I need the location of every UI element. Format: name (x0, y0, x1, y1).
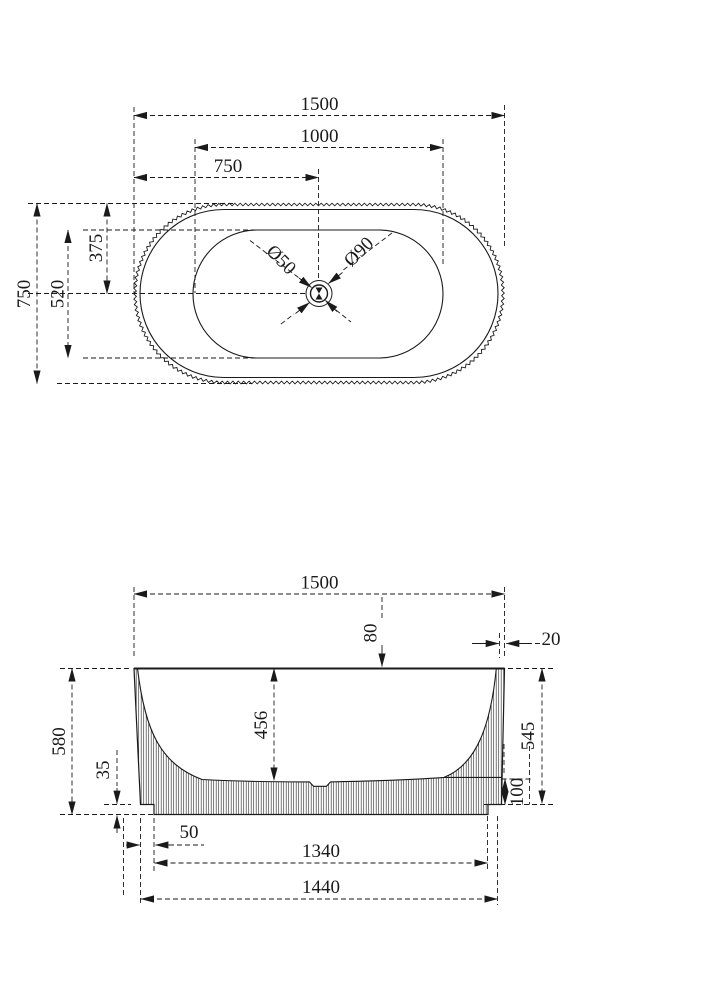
dim-label-flange: Ø90 (340, 233, 378, 271)
dim-overall-height: 580 (49, 669, 72, 815)
dim-label-bottom-width: 1440 (302, 877, 340, 898)
dim-top-center-x: 750 (134, 156, 319, 178)
leader-arrow (326, 301, 338, 312)
leader-arrow (296, 303, 310, 314)
dim-label-rim-ledge: 80 (361, 624, 382, 643)
dim-label-base-height: 100 (507, 778, 528, 807)
dim-bottom-width: 1440 (141, 877, 498, 899)
dim-label-side-height: 545 (518, 722, 539, 751)
dim-label-top-inner-width: 1000 (301, 126, 339, 147)
dim-label-drain: Ø50 (262, 241, 300, 279)
dim-base-offset: 50 (126, 822, 204, 845)
dim-top-overall-width: 1500 (134, 94, 505, 116)
dim-label-top-center-x: 750 (214, 156, 243, 177)
dim-wall-thickness: 20 (472, 629, 561, 650)
dim-label-base-offset: 50 (180, 822, 199, 843)
leader-line (336, 310, 351, 322)
dim-label-wall-thickness: 20 (542, 629, 561, 650)
dim-top-overall-depth: 750 (14, 204, 37, 384)
dim-base-height: 100 (505, 778, 528, 807)
dim-base-step: 35 (93, 750, 117, 833)
dim-label-base-width: 1340 (302, 841, 340, 862)
dim-side-overall-width: 1500 (134, 573, 505, 595)
tub-basin-interior (138, 669, 497, 787)
dim-label-top-overall-depth: 750 (14, 280, 35, 309)
dim-rim-ledge: 80 (361, 597, 383, 667)
leader-line (281, 314, 294, 324)
dim-top-center-y: 375 (86, 204, 107, 294)
dim-label-top-inner-depth: 520 (48, 280, 69, 309)
dim-label-base-step: 35 (93, 761, 114, 780)
top-view: Ø50 Ø90 1500 1000 750 750 520 375 (14, 94, 505, 384)
drawing-sheet: Ø50 Ø90 1500 1000 750 750 520 375 (0, 0, 724, 1000)
dim-base-width: 1340 (155, 841, 488, 863)
side-view: 1500 80 20 580 456 545 100 (49, 573, 561, 906)
technical-drawing: Ø50 Ø90 1500 1000 750 750 520 375 (0, 0, 724, 1000)
dim-label-inner-depth-side: 456 (251, 711, 272, 740)
dim-top-inner-width: 1000 (195, 126, 443, 148)
leader-arrow (329, 273, 343, 284)
dim-label-side-overall-width: 1500 (301, 573, 339, 594)
dim-label-overall-height: 580 (49, 727, 70, 756)
leader-arrow (299, 278, 312, 288)
dim-label-top-overall-width: 1500 (301, 94, 339, 115)
dim-top-inner-depth: 520 (48, 230, 69, 358)
drain-leaders: Ø50 Ø90 (250, 233, 392, 324)
dim-label-top-center-y: 375 (86, 234, 107, 263)
